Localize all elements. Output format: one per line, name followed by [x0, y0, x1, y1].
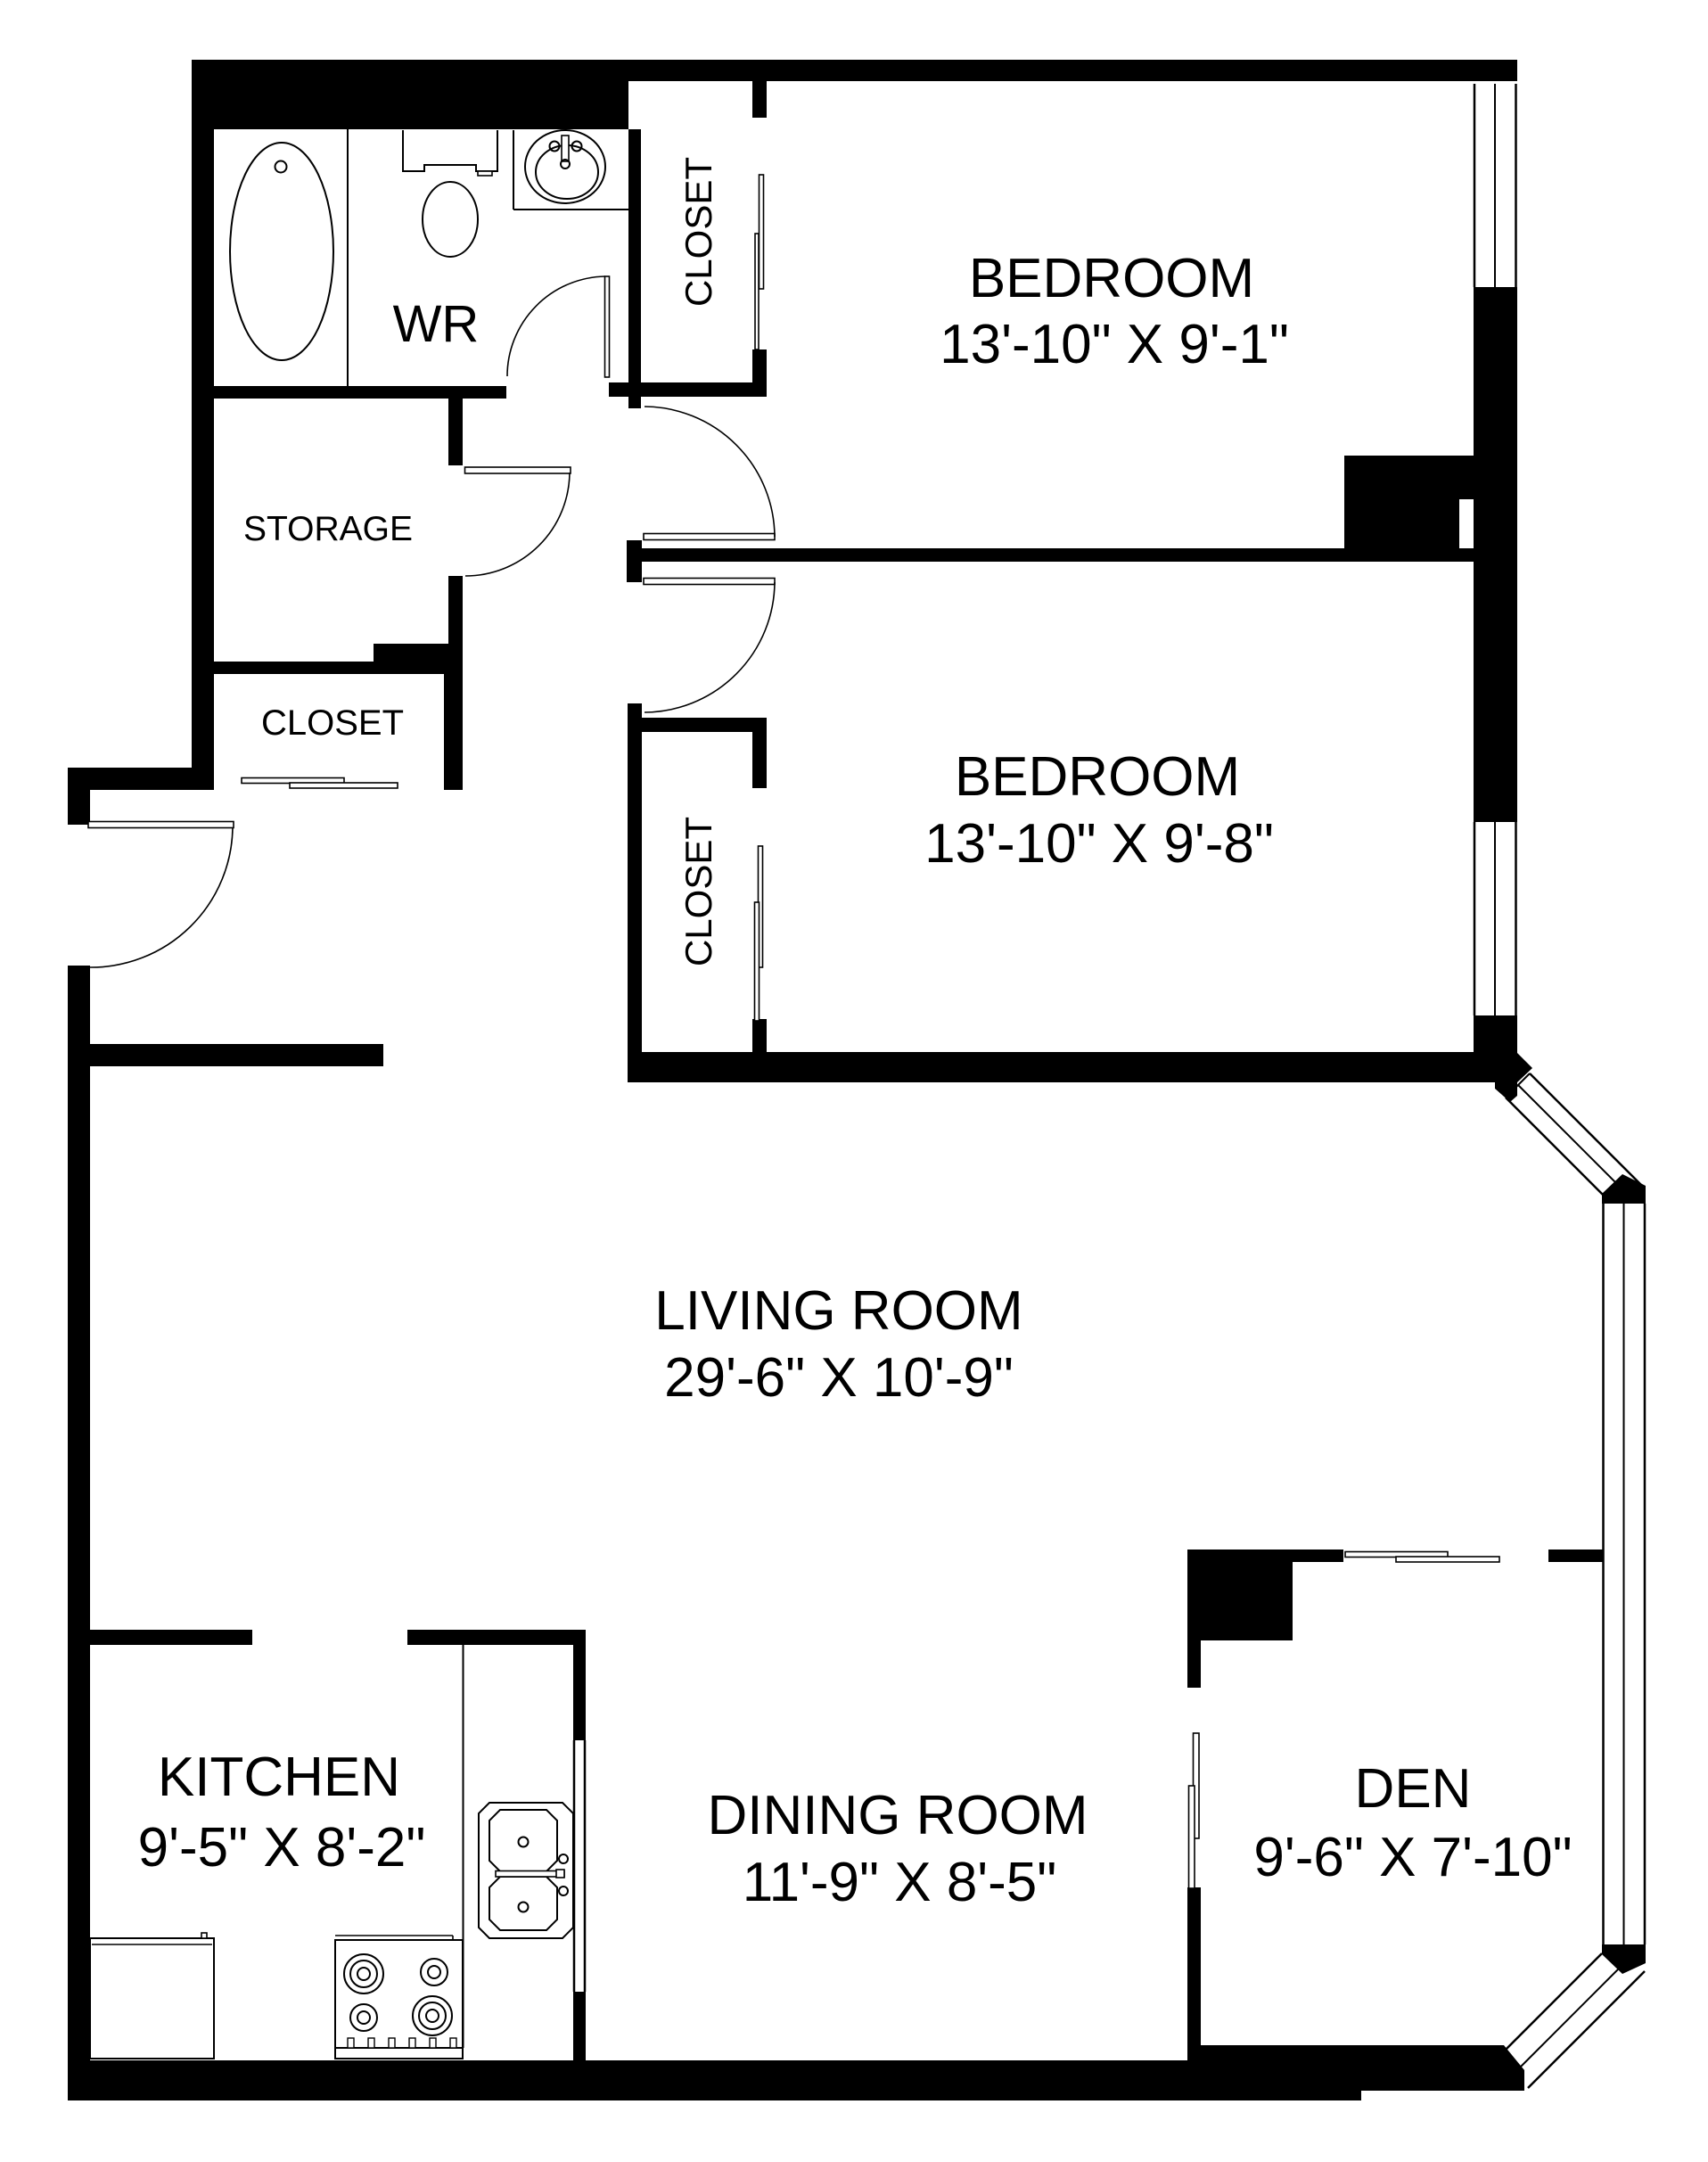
svg-text:WR: WR: [393, 295, 480, 353]
svg-text:CLOSET: CLOSET: [261, 703, 404, 743]
svg-text:BEDROOM: BEDROOM: [955, 746, 1240, 808]
svg-text:KITCHEN: KITCHEN: [158, 1747, 400, 1808]
svg-text:9'-6" X 7'-10": 9'-6" X 7'-10": [1253, 1827, 1572, 1888]
svg-text:DEN: DEN: [1355, 1758, 1472, 1820]
svg-text:BEDROOM: BEDROOM: [969, 248, 1254, 309]
svg-text:LIVING ROOM: LIVING ROOM: [654, 1280, 1022, 1342]
svg-text:9'-5" X 8'-2": 9'-5" X 8'-2": [138, 1817, 426, 1878]
svg-text:11'-9" X 8'-5": 11'-9" X 8'-5": [743, 1852, 1057, 1913]
svg-text:CLOSET: CLOSET: [677, 157, 719, 307]
svg-text:13'-10" X 9'-1": 13'-10" X 9'-1": [940, 314, 1289, 375]
svg-text:29'-6" X 10'-9": 29'-6" X 10'-9": [664, 1347, 1014, 1409]
svg-text:DINING ROOM: DINING ROOM: [707, 1785, 1088, 1846]
svg-text:13'-10" X 9'-8": 13'-10" X 9'-8": [924, 813, 1274, 875]
svg-text:STORAGE: STORAGE: [243, 510, 413, 548]
svg-text:CLOSET: CLOSET: [677, 817, 719, 966]
